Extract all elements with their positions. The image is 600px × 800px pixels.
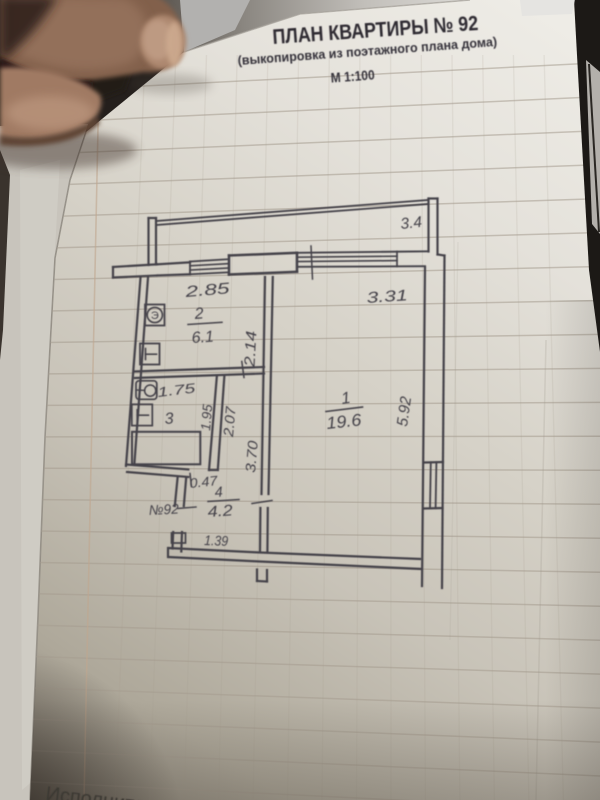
svg-text:4: 4: [214, 484, 223, 501]
svg-text:3.31: 3.31: [366, 287, 408, 307]
svg-text:2: 2: [193, 305, 204, 323]
svg-text:19.6: 19.6: [325, 410, 362, 433]
svg-text:1.39: 1.39: [204, 532, 229, 549]
svg-text:6.1: 6.1: [191, 328, 214, 347]
svg-text:4.2: 4.2: [207, 502, 234, 521]
svg-text:№92: №92: [148, 500, 179, 518]
svg-text:Э: Э: [151, 310, 159, 322]
svg-text:1.95: 1.95: [198, 403, 215, 431]
svg-text:2.07: 2.07: [220, 405, 239, 439]
svg-text:3.70: 3.70: [242, 440, 261, 474]
svg-text:3.4: 3.4: [400, 214, 424, 233]
svg-text:3: 3: [164, 410, 174, 428]
svg-text:2.14: 2.14: [241, 330, 260, 368]
svg-text:М 1:100: М 1:100: [330, 67, 375, 85]
